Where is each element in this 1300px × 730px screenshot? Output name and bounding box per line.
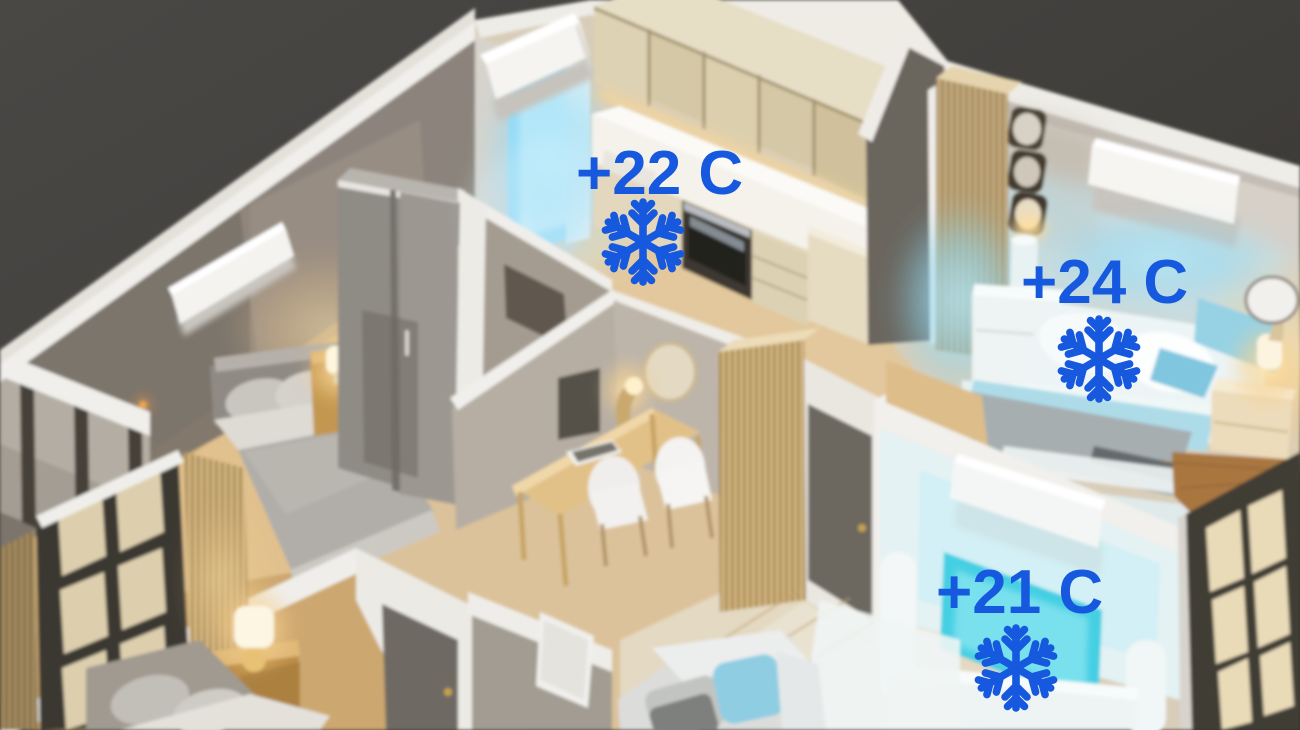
svg-text:+24 C: +24 C — [1021, 248, 1188, 317]
svg-text:+22 C: +22 C — [576, 139, 743, 208]
svg-text:+21 C: +21 C — [936, 558, 1103, 627]
